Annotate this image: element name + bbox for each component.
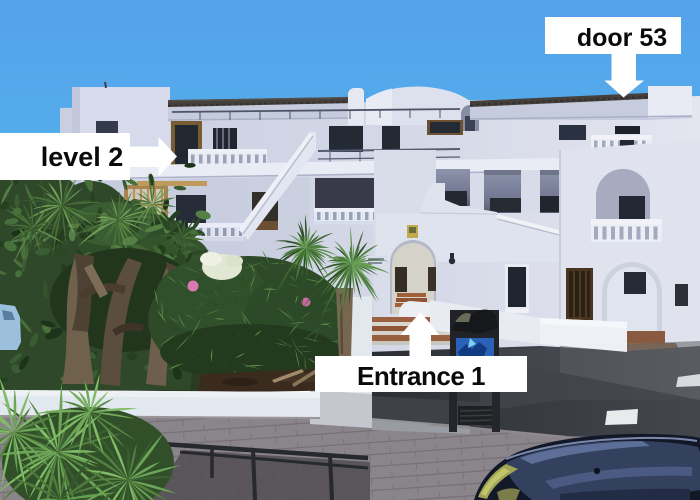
svg-text:level 2: level 2 bbox=[41, 142, 124, 172]
svg-text:door 53: door 53 bbox=[577, 24, 667, 52]
svg-text:Entrance 1: Entrance 1 bbox=[357, 361, 485, 391]
